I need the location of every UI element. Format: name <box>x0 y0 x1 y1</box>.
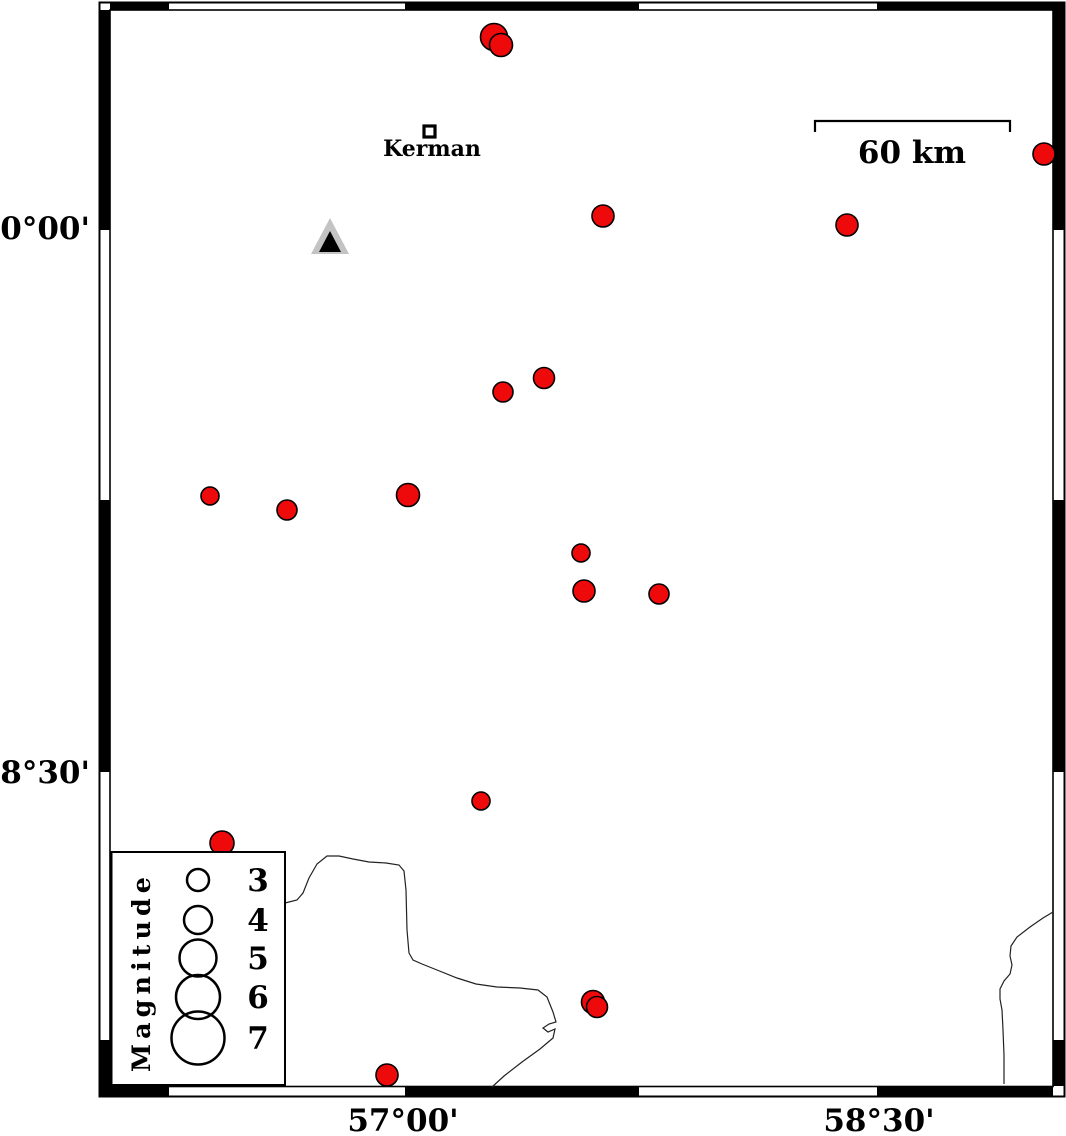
axis-label-lat-28-30: 28°30' <box>0 755 90 791</box>
legend-label-mag-5: 5 <box>247 941 269 977</box>
earthquake-marker <box>277 500 297 520</box>
earthquake-marker <box>572 544 590 562</box>
axis-label-lat-30-00: 30°00' <box>0 211 90 247</box>
earthquake-marker <box>490 34 513 57</box>
city-label: Kerman <box>383 136 481 162</box>
seismicity-map-figure: 30°00' 28°30' 57°00' 58°30' 60 km Kerman… <box>0 0 1066 1136</box>
earthquake-marker <box>573 580 595 602</box>
earthquake-marker <box>649 584 669 604</box>
map-canvas: 30°00' 28°30' 57°00' 58°30' 60 km Kerman… <box>0 0 1066 1136</box>
legend-label-mag-7: 7 <box>247 1021 269 1057</box>
earthquake-marker <box>201 487 219 505</box>
earthquake-marker <box>376 1064 398 1086</box>
earthquake-marker <box>836 214 858 236</box>
legend-label-mag-6: 6 <box>247 980 269 1016</box>
scale-bar-label: 60 km <box>858 135 966 171</box>
earthquake-marker <box>592 205 614 227</box>
magnitude-legend: Magnitude 34567 <box>112 852 286 1085</box>
earthquake-marker <box>493 382 513 402</box>
axis-label-lon-58-30: 58°30' <box>823 1103 934 1136</box>
earthquake-marker <box>1033 143 1055 165</box>
legend-label-mag-3: 3 <box>247 863 269 899</box>
legend-title: Magnitude <box>127 872 156 1072</box>
earthquake-marker <box>534 368 555 389</box>
earthquake-marker <box>587 997 608 1018</box>
axis-label-lon-57-00: 57°00' <box>347 1103 458 1136</box>
earthquake-marker <box>397 484 420 507</box>
legend-size-numbers: 34567 <box>247 863 269 1057</box>
earthquake-marker <box>472 792 490 810</box>
legend-label-mag-4: 4 <box>247 903 269 939</box>
